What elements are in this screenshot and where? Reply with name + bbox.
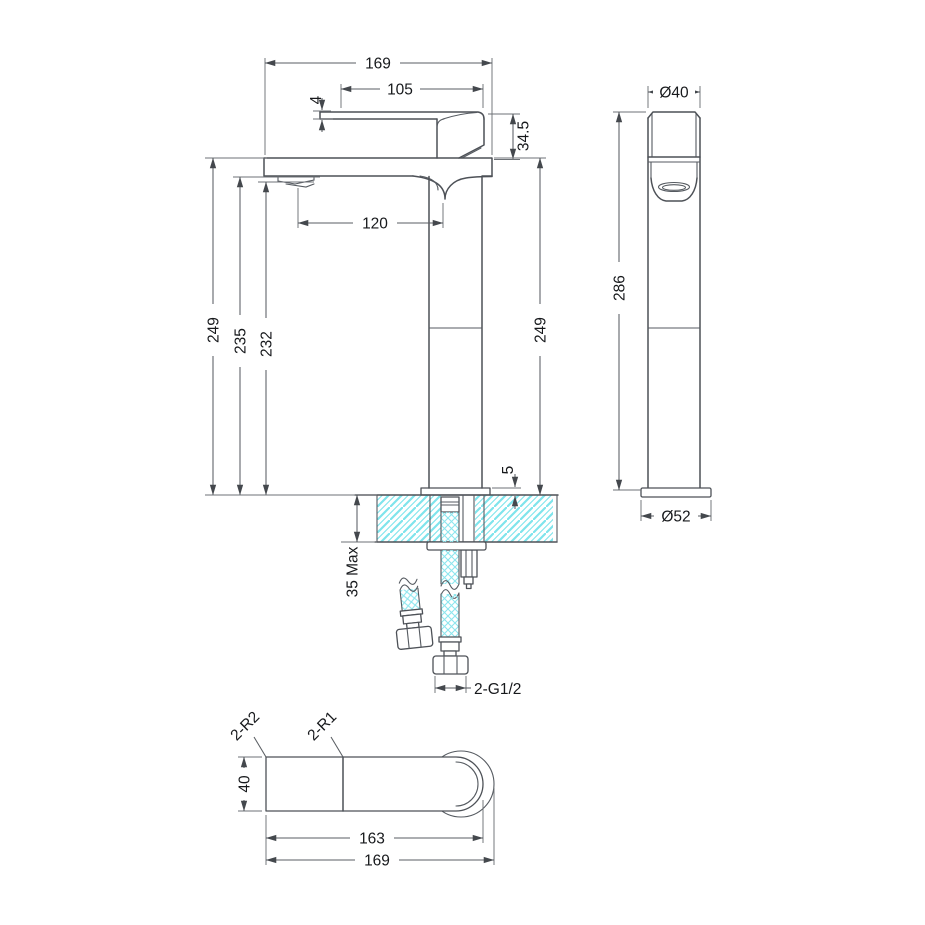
faucet-drawing-canvas: 169 105 4 34.5 120	[0, 0, 925, 925]
base-flange-front	[421, 488, 490, 495]
side-view: Ø40 286 Ø52	[611, 84, 712, 526]
countertop-hatch	[377, 495, 553, 543]
dim-front-base-plate: 5	[500, 466, 517, 475]
dim-plan-outer-radius: 2-R2	[227, 708, 263, 744]
tap-outline-side	[641, 112, 711, 497]
dim-front-spout-reach: 120	[362, 216, 388, 233]
dim-plan-inner-radius: 2-R1	[304, 708, 340, 744]
dim-front-spout-height: 235	[233, 328, 250, 354]
dim-front-height-right: 249	[533, 317, 550, 343]
dim-front-counter-thickness: 35 Max	[345, 546, 362, 597]
flexible-hose-secondary	[391, 576, 433, 650]
dim-side-total-height: 286	[612, 275, 629, 301]
dim-front-total-width: 169	[365, 56, 391, 73]
dim-plan-inner-length: 163	[359, 831, 385, 848]
plan-view: 2-R2 2-R1 40 163 169	[227, 708, 494, 869]
dim-front-lever-length: 105	[387, 82, 413, 99]
handle-outline-plan	[266, 757, 483, 811]
dim-side-base-diameter: Ø52	[661, 509, 690, 526]
front-view: 169 105 4 34.5 120	[205, 55, 559, 698]
dim-side-top-diameter: Ø40	[659, 85, 689, 102]
dim-front-height-left: 249	[206, 317, 223, 343]
front-dimensions: 169 105 4 34.5 120	[205, 55, 550, 698]
technical-drawing-page: 169 105 4 34.5 120	[0, 0, 925, 925]
dim-front-head-height: 34.5	[516, 121, 533, 151]
dim-plan-body-width: 40	[237, 775, 254, 793]
base-flange-side	[641, 488, 711, 497]
dim-front-aerator-height: 232	[259, 331, 276, 357]
dim-front-thread-size: 2-G1/2	[474, 681, 521, 698]
dim-plan-total-length: 169	[364, 853, 390, 870]
dim-front-lever-thickness: 4	[308, 95, 325, 104]
